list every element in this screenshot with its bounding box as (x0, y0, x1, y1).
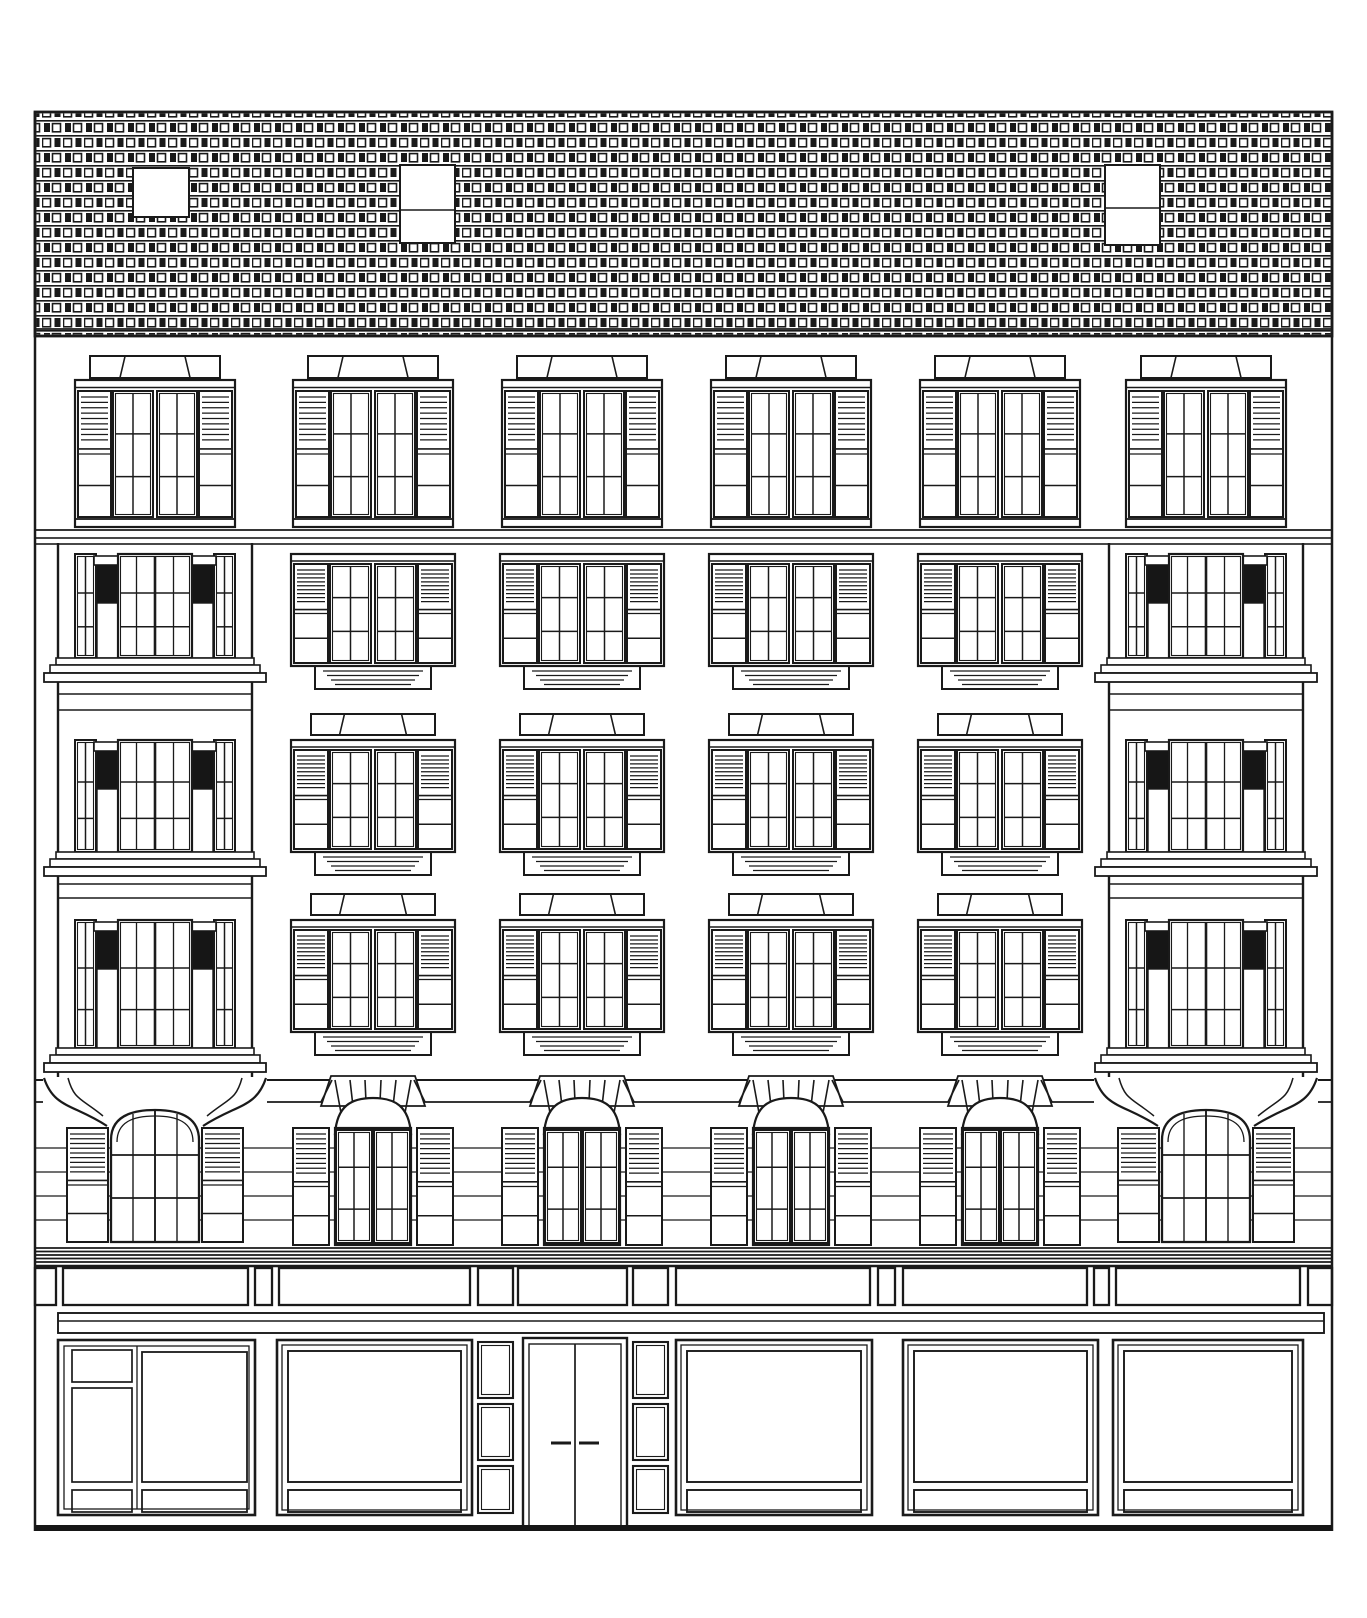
casement-window (748, 564, 789, 663)
casement-window (375, 930, 416, 1029)
attic-window-row (35, 356, 1332, 544)
column-capital (192, 565, 213, 603)
casement-window (584, 930, 625, 1029)
sign-band (35, 1268, 1332, 1305)
skylight (133, 168, 189, 217)
upper-floor-row (291, 714, 1082, 875)
louvered-shutter (294, 564, 328, 663)
louvered-shutter (1253, 1128, 1294, 1242)
sign-block (1308, 1268, 1332, 1305)
casement-window (539, 930, 580, 1029)
roof-brick-band (35, 112, 1332, 336)
column-capital (1243, 751, 1264, 789)
bay-center-window (1169, 920, 1243, 1048)
louvered-shutter (627, 750, 661, 849)
column-capital (97, 751, 118, 789)
louvered-shutter (202, 1128, 243, 1242)
casement-window (540, 391, 580, 517)
bracket-sill (524, 1032, 640, 1055)
casement-window (584, 391, 624, 517)
column-capital (192, 751, 213, 789)
casement-window (963, 1130, 999, 1243)
window-unit (918, 714, 1082, 875)
belt-course (58, 1313, 1324, 1333)
casement-window (1001, 1130, 1037, 1243)
louvered-shutter (836, 564, 870, 663)
window-pediment (729, 714, 853, 735)
casement-window (793, 930, 834, 1029)
louvered-shutter (714, 391, 747, 517)
louvered-shutter (1129, 391, 1162, 517)
sign-panel (63, 1268, 248, 1305)
casement-window (748, 750, 789, 849)
bracket-sill (942, 852, 1058, 875)
louvered-shutter (417, 391, 450, 517)
bracket-sill (733, 666, 849, 689)
bay-tower-story (44, 740, 266, 876)
bracket-sill (315, 1032, 431, 1055)
skylight (1105, 165, 1160, 245)
ground-line (35, 1525, 1332, 1531)
mezzanine-arched-window (43, 1077, 267, 1242)
louvered-shutter (1045, 750, 1079, 849)
window-pediment (90, 356, 220, 378)
casement-window (1265, 740, 1286, 852)
window-unit (291, 714, 455, 875)
bay-center-window (118, 740, 192, 852)
bay-center-window (1169, 554, 1243, 658)
sign-block (35, 1268, 56, 1305)
bay-center-window (118, 920, 192, 1048)
casement-window (331, 391, 371, 517)
casement-window (793, 564, 834, 663)
sign-block (633, 1268, 668, 1305)
casement-window (1002, 391, 1042, 517)
storefront-composite-window (58, 1340, 255, 1515)
louvered-shutter (417, 1128, 453, 1245)
bracket-sill (733, 852, 849, 875)
window-unit (709, 714, 873, 875)
casement-window (792, 1130, 828, 1243)
kick-panel (914, 1490, 1087, 1512)
casement-window (957, 564, 998, 663)
attic-window-unit (502, 356, 662, 527)
louvered-shutter (502, 1128, 538, 1245)
window-pediment (308, 356, 438, 378)
facade-drawing (0, 0, 1367, 1618)
casement-window (375, 564, 416, 663)
casement-window (1265, 920, 1286, 1048)
casement-window (214, 740, 235, 852)
door-pilaster-panels (478, 1342, 513, 1513)
column-capital (192, 931, 213, 969)
window-unit (291, 554, 455, 689)
louvered-shutter (921, 750, 955, 849)
casement-window (749, 391, 789, 517)
window-pediment (935, 356, 1065, 378)
window-unit (918, 554, 1082, 689)
entrance-door (523, 1338, 627, 1527)
entablature-cornice (35, 1248, 1332, 1266)
casement-window (1002, 750, 1043, 849)
casement-window (754, 1130, 790, 1243)
louvered-shutter (1044, 391, 1077, 517)
window-unit (709, 894, 873, 1055)
casement-window (75, 740, 96, 852)
louvered-shutter (78, 391, 111, 517)
casement-window (1002, 564, 1043, 663)
bracket-sill (315, 852, 431, 875)
column-capital (1148, 565, 1169, 603)
louvered-shutter (503, 564, 537, 663)
attic-window-unit (920, 356, 1080, 527)
window-pediment (520, 714, 644, 735)
louvered-shutter (293, 1128, 329, 1245)
louvered-shutter (712, 750, 746, 849)
column-capital (1243, 565, 1264, 603)
window-pediment (729, 894, 853, 915)
casement-window (1208, 391, 1248, 517)
door-pilaster-panels (633, 1342, 668, 1513)
louvered-shutter (503, 750, 537, 849)
bay-tower-right (1095, 543, 1317, 1079)
casement-window (330, 564, 371, 663)
casement-window (374, 1130, 410, 1243)
casement-window (793, 750, 834, 849)
casement-window (539, 750, 580, 849)
column-capital (1148, 751, 1169, 789)
attic-window-unit (75, 356, 235, 527)
attic-window-unit (1126, 356, 1286, 527)
window-pediment (520, 894, 644, 915)
casement-window (75, 554, 96, 658)
casement-window (214, 554, 235, 658)
column-capital (1243, 931, 1264, 969)
casement-window (1164, 391, 1204, 517)
louvered-shutter (418, 930, 452, 1029)
window-unit (500, 894, 664, 1055)
storefront-window (277, 1340, 472, 1515)
casement-window (113, 391, 153, 517)
column-capital (97, 565, 118, 603)
louvered-shutter (626, 391, 659, 517)
kick-panel (288, 1490, 461, 1512)
casement-window (1126, 920, 1147, 1048)
sign-panel (279, 1268, 470, 1305)
louvered-shutter (923, 391, 956, 517)
louvered-shutter (1045, 564, 1079, 663)
upper-floor-row (291, 894, 1082, 1055)
casement-window (957, 930, 998, 1029)
louvered-shutter (627, 930, 661, 1029)
skylight (400, 165, 455, 243)
louvered-shutter (835, 1128, 871, 1245)
casement-window (748, 930, 789, 1029)
sign-panel (676, 1268, 870, 1305)
casement-window (584, 750, 625, 849)
window-pediment (1141, 356, 1271, 378)
casement-window (584, 564, 625, 663)
casement-window (1002, 930, 1043, 1029)
casement-window (793, 391, 833, 517)
casement-window (545, 1130, 581, 1243)
window-pediment (311, 894, 435, 915)
window-unit (709, 554, 873, 689)
window-pediment (938, 714, 1062, 735)
sign-block (255, 1268, 272, 1305)
casement-window (958, 391, 998, 517)
louvered-shutter (294, 930, 328, 1029)
bay-tower-story (44, 554, 266, 682)
sign-panel (518, 1268, 627, 1305)
window-pediment (726, 356, 856, 378)
window-unit (918, 894, 1082, 1055)
louvered-shutter (836, 750, 870, 849)
casement-window (75, 920, 96, 1048)
louvered-shutter (67, 1128, 108, 1242)
bracket-sill (942, 1032, 1058, 1055)
bracket-sill (524, 852, 640, 875)
louvered-shutter (921, 930, 955, 1029)
casement-window (583, 1130, 619, 1243)
bay-tower-story (44, 920, 266, 1072)
sign-block (478, 1268, 513, 1305)
column-capital (1148, 931, 1169, 969)
louvered-shutter (503, 930, 537, 1029)
louvered-shutter (712, 930, 746, 1029)
casement-window (539, 564, 580, 663)
louvered-shutter (418, 564, 452, 663)
casement-window (330, 750, 371, 849)
louvered-shutter (920, 1128, 956, 1245)
casement-window (330, 930, 371, 1029)
storefront (58, 1338, 1303, 1527)
storefront-window (676, 1340, 872, 1515)
sign-block (878, 1268, 895, 1305)
louvered-shutter (1044, 1128, 1080, 1245)
bay-center-window (118, 554, 192, 658)
storefront-window (1113, 1340, 1303, 1515)
kick-panel (687, 1490, 861, 1512)
bracket-sill (733, 1032, 849, 1055)
bay-tower-story (1095, 740, 1317, 876)
louvered-shutter (294, 750, 328, 849)
bay-tower-story (1095, 554, 1317, 682)
casement-window (157, 391, 197, 517)
louvered-shutter (505, 391, 538, 517)
casement-window (1126, 554, 1147, 658)
mezzanine-arched-window (1094, 1077, 1318, 1242)
casement-window (375, 750, 416, 849)
louvered-shutter (921, 564, 955, 663)
bracket-sill (942, 666, 1058, 689)
bay-tower-left (44, 543, 266, 1079)
sign-panel (1116, 1268, 1300, 1305)
attic-window-unit (711, 356, 871, 527)
bracket-sill (315, 666, 431, 689)
upper-floor-row (291, 554, 1082, 689)
mezzanine (35, 1076, 1332, 1245)
louvered-shutter (1118, 1128, 1159, 1242)
louvered-shutter (296, 391, 329, 517)
louvered-shutter (199, 391, 232, 517)
louvered-shutter (1045, 930, 1079, 1029)
sign-block (1094, 1268, 1109, 1305)
architectural-elevation (0, 0, 1367, 1618)
louvered-shutter (711, 1128, 747, 1245)
casement-window (336, 1130, 372, 1243)
column-capital (97, 931, 118, 969)
storefront-window (903, 1340, 1098, 1515)
window-unit (500, 554, 664, 689)
window-pediment (938, 894, 1062, 915)
louvered-shutter (1250, 391, 1283, 517)
window-pediment (517, 356, 647, 378)
casement-window (1265, 554, 1286, 658)
casement-window (214, 920, 235, 1048)
louvered-shutter (418, 750, 452, 849)
kick-panel (1124, 1490, 1292, 1512)
bay-center-window (1169, 740, 1243, 852)
louvered-shutter (627, 564, 661, 663)
casement-window (957, 750, 998, 849)
louvered-shutter (712, 564, 746, 663)
casement-window (1126, 740, 1147, 852)
window-unit (291, 894, 455, 1055)
attic-window-unit (293, 356, 453, 527)
bay-tower-story (1095, 920, 1317, 1072)
window-pediment (311, 714, 435, 735)
sign-panel (903, 1268, 1087, 1305)
bracket-sill (524, 666, 640, 689)
louvered-shutter (626, 1128, 662, 1245)
louvered-shutter (836, 930, 870, 1029)
casement-window (375, 391, 415, 517)
louvered-shutter (835, 391, 868, 517)
window-unit (500, 714, 664, 875)
